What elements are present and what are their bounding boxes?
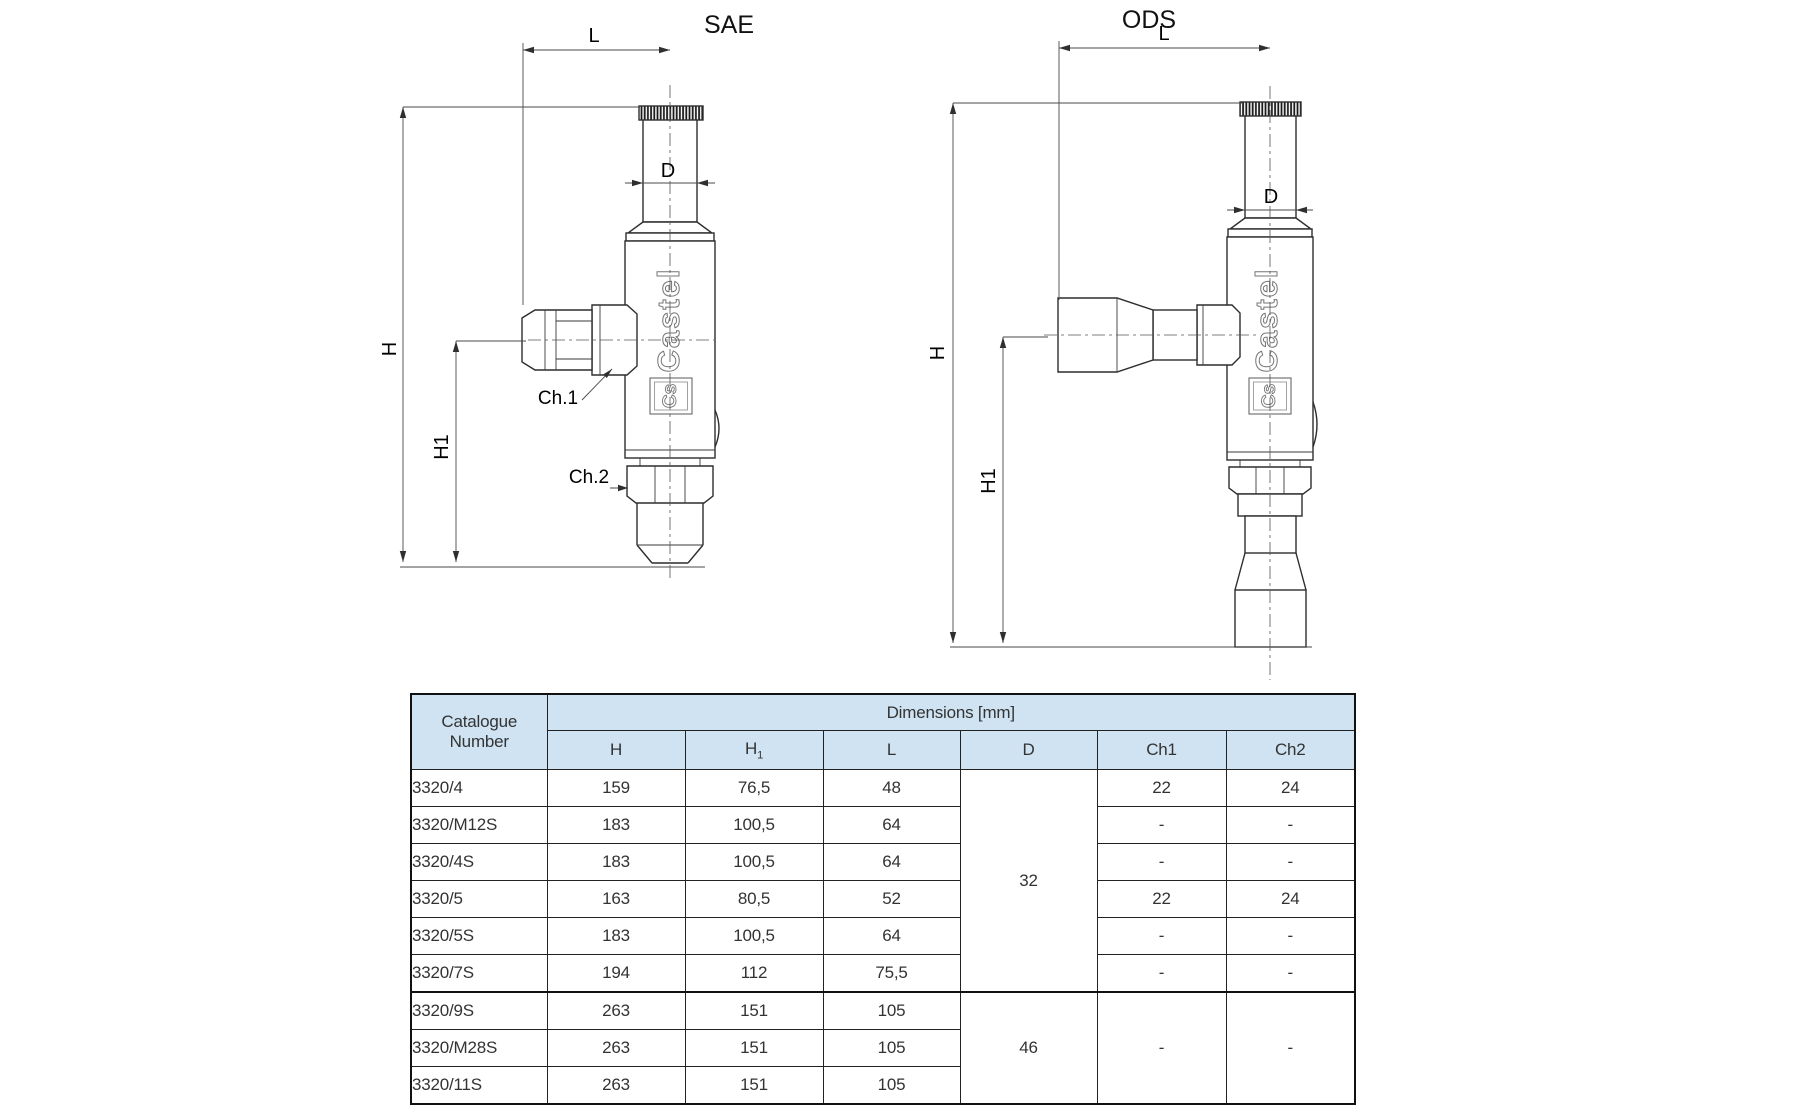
col-header-l: L bbox=[823, 731, 960, 770]
sae-title: SAE bbox=[704, 11, 754, 39]
ods-bottom-neck bbox=[1245, 516, 1296, 553]
table-row: 3320/5 163 80,5 52 22 24 bbox=[411, 881, 1355, 918]
sae-dim-h-label: H bbox=[379, 342, 401, 356]
table-row: 3320/7S 194 112 75,5 - - bbox=[411, 955, 1355, 993]
sae-knurled-cap bbox=[639, 106, 703, 120]
col-header-h1: H1 bbox=[685, 731, 823, 770]
ods-dim-h1-label: H1 bbox=[978, 468, 1000, 494]
d-group-46: 46 bbox=[960, 992, 1097, 1104]
col-header-ch2: Ch2 bbox=[1226, 731, 1355, 770]
ods-bottom-taper bbox=[1235, 553, 1306, 590]
table-row: 3320/9S 263 151 105 46 - - bbox=[411, 992, 1355, 1030]
datasheet-page: Castel Cs SAE L D H H1 Ch.1 Ch.2 bbox=[0, 0, 1800, 1107]
table-row: 3320/4S 183 100,5 64 - - bbox=[411, 844, 1355, 881]
catalogue-cell: 3320/5 bbox=[411, 881, 547, 918]
ods-brand-text: Castel bbox=[1249, 267, 1284, 372]
col-header-h: H bbox=[547, 731, 685, 770]
dimensions-table: Catalogue Number Dimensions [mm] H H1 L … bbox=[410, 693, 1356, 1105]
ods-cone bbox=[1230, 218, 1311, 229]
ch1-group: - bbox=[1097, 992, 1226, 1104]
ods-bottom-cup bbox=[1235, 590, 1306, 647]
sae-dim-l-label: L bbox=[588, 25, 599, 47]
sae-brand-text: Castel bbox=[651, 267, 686, 372]
col-header-d: D bbox=[960, 731, 1097, 770]
technical-drawings: Castel Cs SAE L D H H1 Ch.1 Ch.2 bbox=[0, 0, 1800, 690]
sae-dim-d-label: D bbox=[661, 160, 675, 182]
ods-dim-l-label: L bbox=[1158, 23, 1169, 45]
ods-dim-h-label: H bbox=[927, 346, 949, 360]
catalogue-cell: 3320/11S bbox=[411, 1067, 547, 1105]
col-header-ch1: Ch1 bbox=[1097, 731, 1226, 770]
catalogue-cell: 3320/4 bbox=[411, 770, 547, 807]
table-row: 3320/M12S 183 100,5 64 - - bbox=[411, 807, 1355, 844]
catalogue-cell: 3320/7S bbox=[411, 955, 547, 993]
header-catalogue-number: Catalogue Number bbox=[411, 694, 547, 770]
table-row: 3320/4 159 76,5 48 32 22 24 bbox=[411, 770, 1355, 807]
sae-valve-drawing: Castel Cs SAE L D H H1 Ch.1 Ch.2 bbox=[379, 11, 754, 578]
sae-logo-monogram: Cs bbox=[660, 384, 681, 408]
sae-ch1-label: Ch.1 bbox=[538, 388, 578, 409]
sae-dim-h1-label: H1 bbox=[431, 434, 453, 460]
table-row: 3320/5S 183 100,5 64 - - bbox=[411, 918, 1355, 955]
catalogue-cell: 3320/5S bbox=[411, 918, 547, 955]
ch2-group: - bbox=[1226, 992, 1355, 1104]
catalogue-cell: 3320/9S bbox=[411, 992, 547, 1030]
ods-knurled-cap bbox=[1240, 102, 1301, 116]
catalogue-cell: 3320/M12S bbox=[411, 807, 547, 844]
d-group-32: 32 bbox=[960, 770, 1097, 993]
catalogue-cell: 3320/M28S bbox=[411, 1030, 547, 1067]
header-dimensions-mm: Dimensions [mm] bbox=[547, 694, 1355, 731]
ods-valve-drawing: Castel Cs ODS L D H H1 bbox=[927, 6, 1317, 680]
dimensions-table-wrap: Catalogue Number Dimensions [mm] H H1 L … bbox=[410, 693, 1356, 1105]
ods-logo-monogram: Cs bbox=[1259, 384, 1280, 408]
catalogue-cell: 3320/4S bbox=[411, 844, 547, 881]
sae-ch2-label: Ch.2 bbox=[569, 467, 609, 488]
ods-dim-d-label: D bbox=[1264, 186, 1278, 208]
